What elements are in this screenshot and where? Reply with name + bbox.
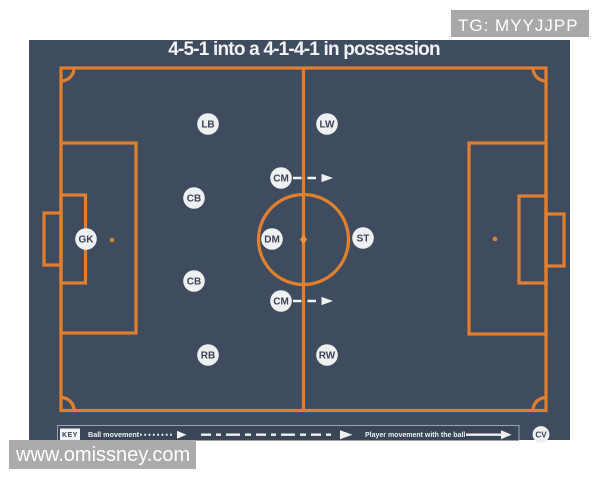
svg-text:CV: CV — [535, 431, 547, 440]
svg-text:KEY: KEY — [62, 432, 78, 439]
svg-text:4-5-1 into a 4-1-4-1 in posses: 4-5-1 into a 4-1-4-1 in possession — [168, 39, 440, 60]
svg-text:Ball movement: Ball movement — [88, 430, 140, 439]
svg-text:CM: CM — [273, 297, 289, 308]
svg-text:CM: CM — [273, 174, 289, 185]
svg-text:RB: RB — [201, 351, 215, 362]
svg-text:DM: DM — [264, 235, 280, 246]
svg-text:LB: LB — [201, 120, 214, 131]
svg-text:RW: RW — [319, 351, 336, 362]
svg-text:CB: CB — [187, 194, 201, 205]
svg-text:ST: ST — [357, 234, 370, 245]
svg-text:LW: LW — [320, 120, 336, 131]
svg-text:www.omissney.com: www.omissney.com — [15, 444, 190, 466]
svg-text:TG: MYYJJPP: TG: MYYJJPP — [458, 16, 579, 35]
svg-text:CB: CB — [187, 277, 201, 288]
svg-text:Player movement with the ball: Player movement with the ball — [365, 432, 465, 439]
svg-text:GK: GK — [79, 235, 95, 246]
